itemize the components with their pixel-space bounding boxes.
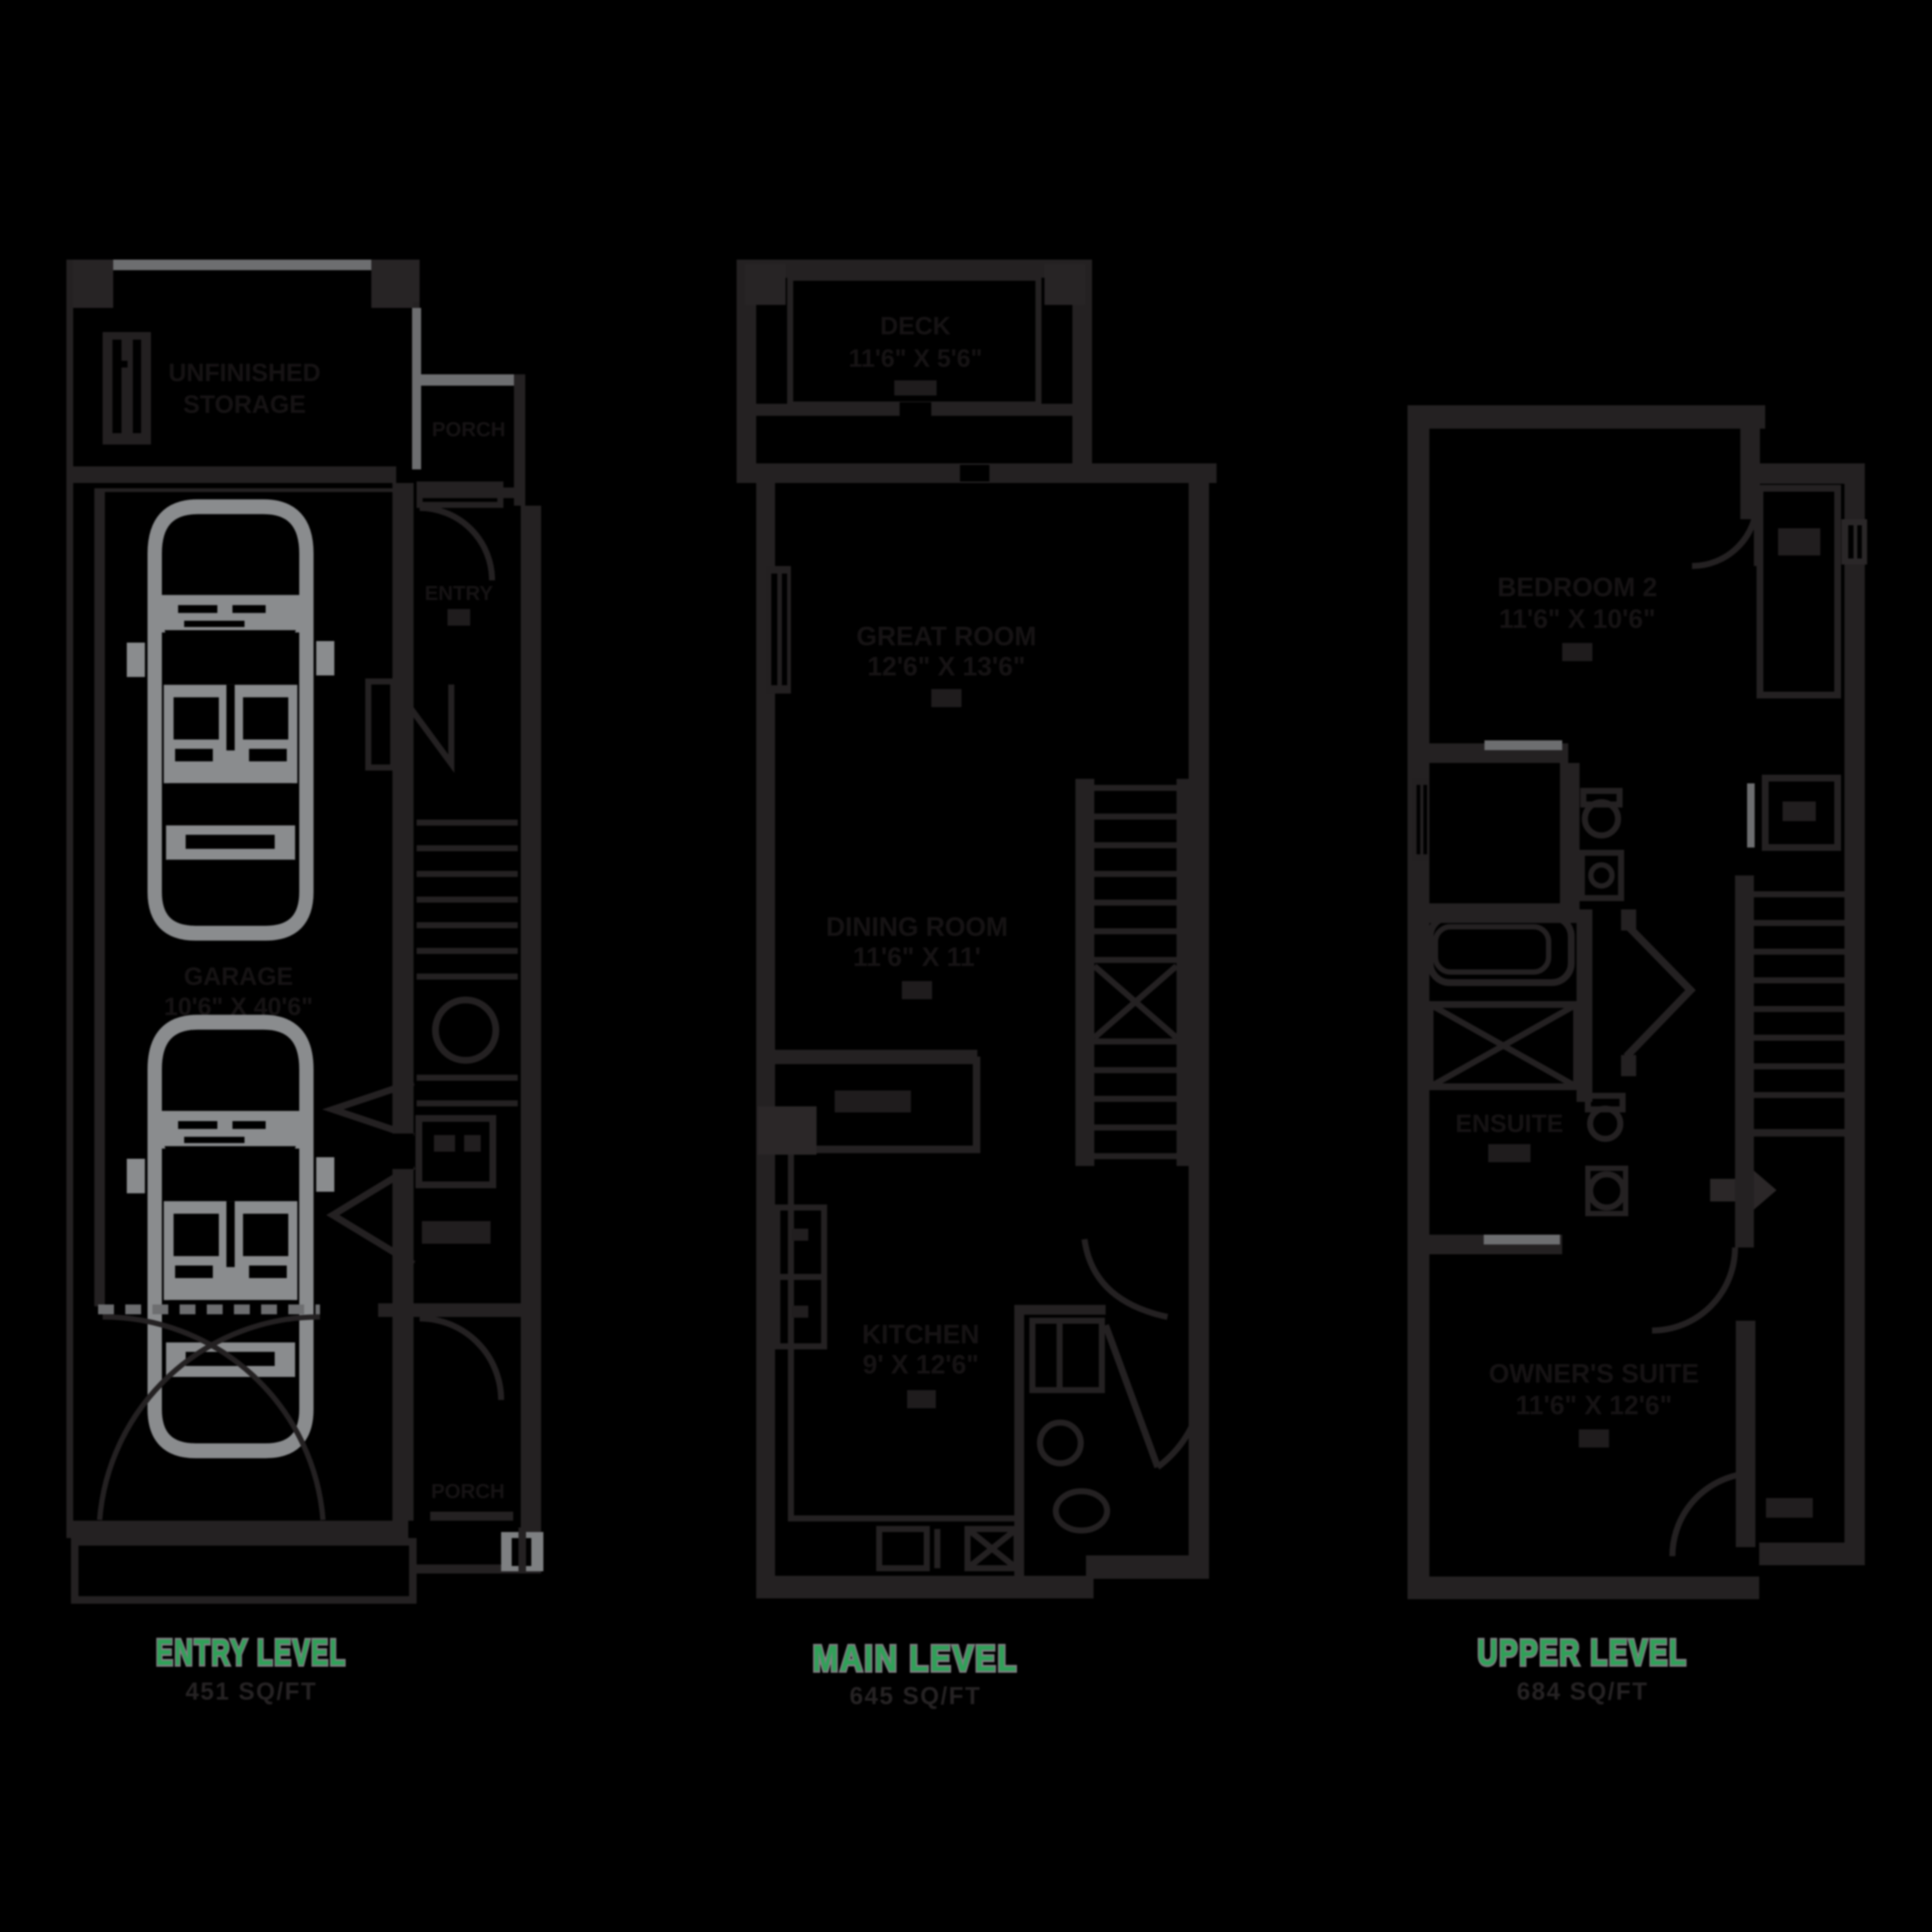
svg-text:ENSUITE: ENSUITE — [1455, 1109, 1563, 1137]
svg-text:UNFINISHED: UNFINISHED — [168, 358, 321, 386]
svg-text:OWNER'S SUITE: OWNER'S SUITE — [1489, 1359, 1700, 1389]
svg-text:DECK: DECK — [880, 312, 951, 340]
svg-text:STORAGE: STORAGE — [183, 390, 306, 418]
svg-text:GARAGE: GARAGE — [184, 962, 294, 990]
svg-text:12'6" X 13'6": 12'6" X 13'6" — [867, 652, 1025, 681]
svg-text:11'6" X 11': 11'6" X 11' — [853, 943, 981, 972]
svg-text:9' X 12'6": 9' X 12'6" — [863, 1350, 979, 1380]
svg-text:BEDROOM 2: BEDROOM 2 — [1497, 573, 1657, 602]
svg-text:684 SQ/FT: 684 SQ/FT — [1517, 1678, 1649, 1705]
svg-text:451 SQ/FT: 451 SQ/FT — [186, 1678, 318, 1705]
svg-text:GREAT ROOM: GREAT ROOM — [857, 622, 1037, 651]
svg-text:ENTRY LEVEL: ENTRY LEVEL — [156, 1632, 347, 1672]
svg-text:PORCH: PORCH — [431, 1480, 505, 1503]
svg-text:11'6" X 10'6": 11'6" X 10'6" — [1499, 605, 1656, 634]
svg-text:11'6" X 5'6": 11'6" X 5'6" — [848, 344, 982, 372]
svg-text:11'6" X 12'6": 11'6" X 12'6" — [1515, 1391, 1672, 1420]
svg-text:DINING ROOM: DINING ROOM — [826, 912, 1008, 942]
svg-text:MAIN LEVEL: MAIN LEVEL — [813, 1639, 1018, 1679]
svg-text:KITCHEN: KITCHEN — [862, 1320, 980, 1349]
svg-text:645 SQ/FT: 645 SQ/FT — [850, 1682, 982, 1709]
svg-text:ENTRY: ENTRY — [425, 582, 494, 605]
svg-text:PORCH: PORCH — [432, 418, 506, 441]
svg-text:UPPER LEVEL: UPPER LEVEL — [1478, 1632, 1687, 1673]
